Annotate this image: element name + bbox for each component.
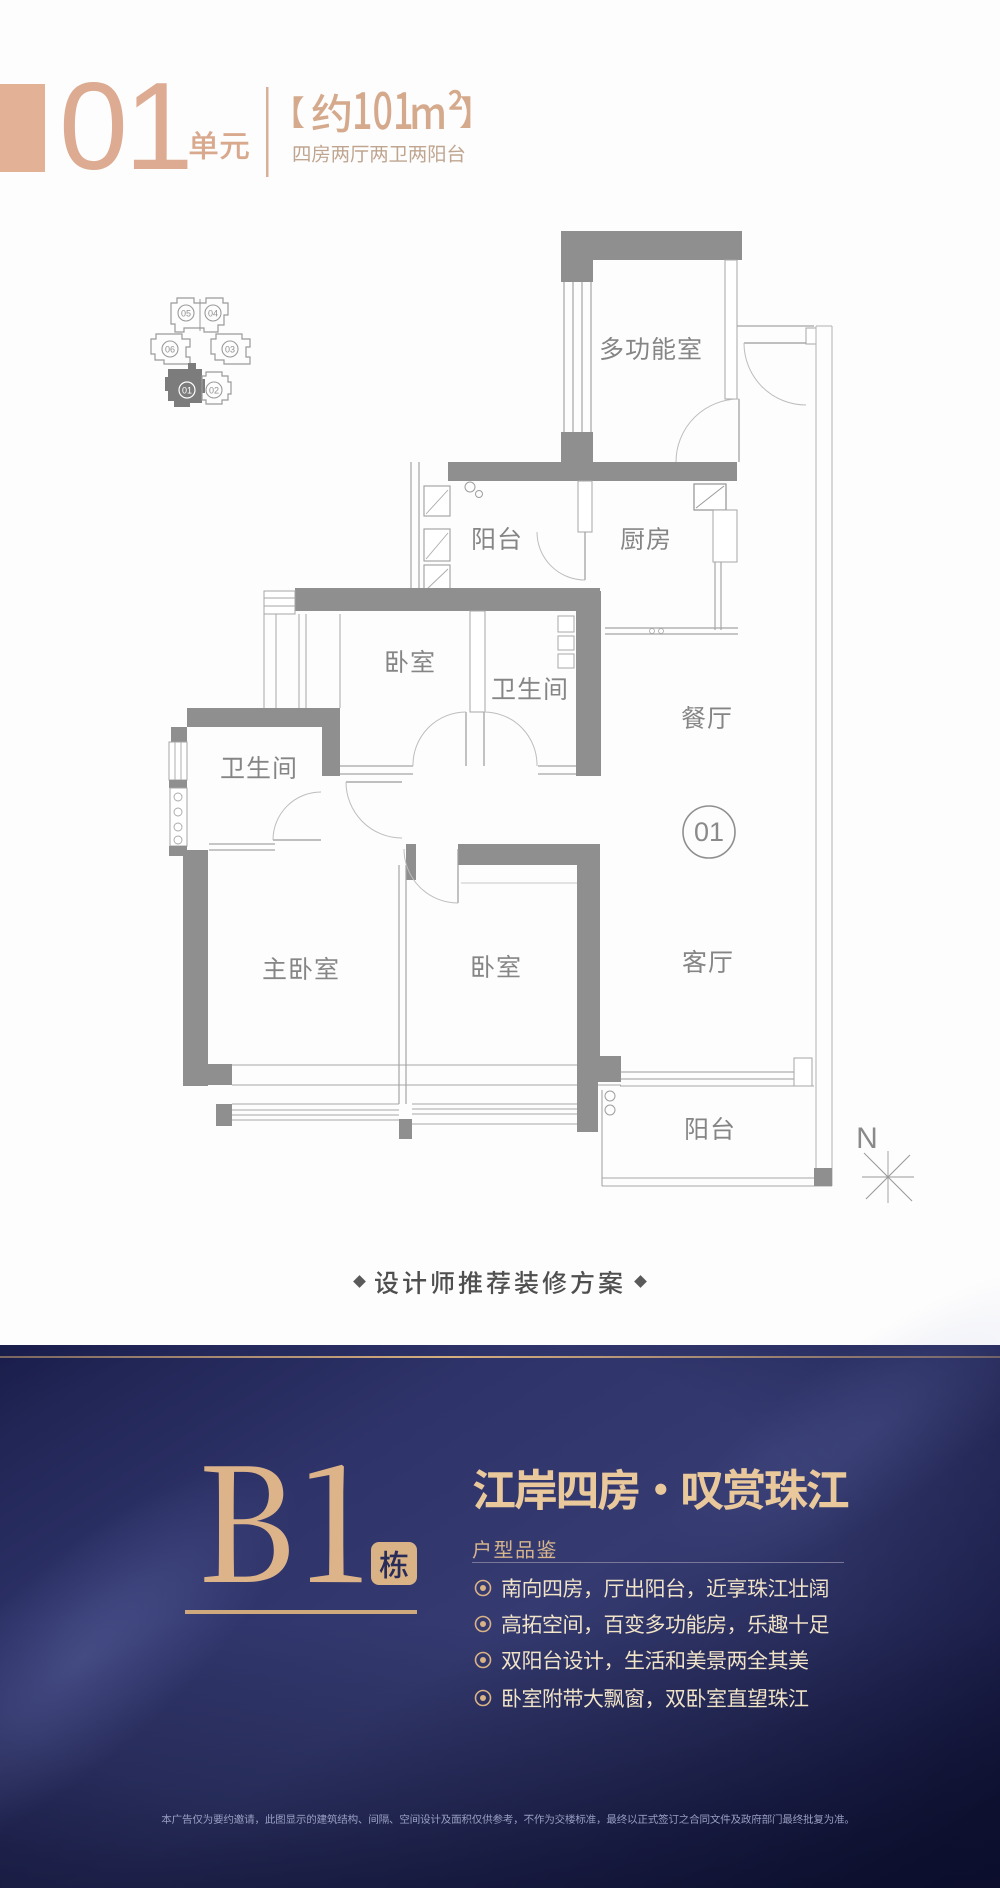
svg-text:01: 01 <box>182 386 192 396</box>
svg-text:01: 01 <box>59 58 190 196</box>
svg-text:03: 03 <box>225 345 235 355</box>
svg-text:01: 01 <box>694 817 724 847</box>
svg-text:N: N <box>856 1122 878 1155</box>
svg-text:05: 05 <box>181 309 191 319</box>
svg-text:04: 04 <box>208 309 218 319</box>
svg-text:02: 02 <box>209 386 219 396</box>
svg-text:06: 06 <box>165 345 175 355</box>
